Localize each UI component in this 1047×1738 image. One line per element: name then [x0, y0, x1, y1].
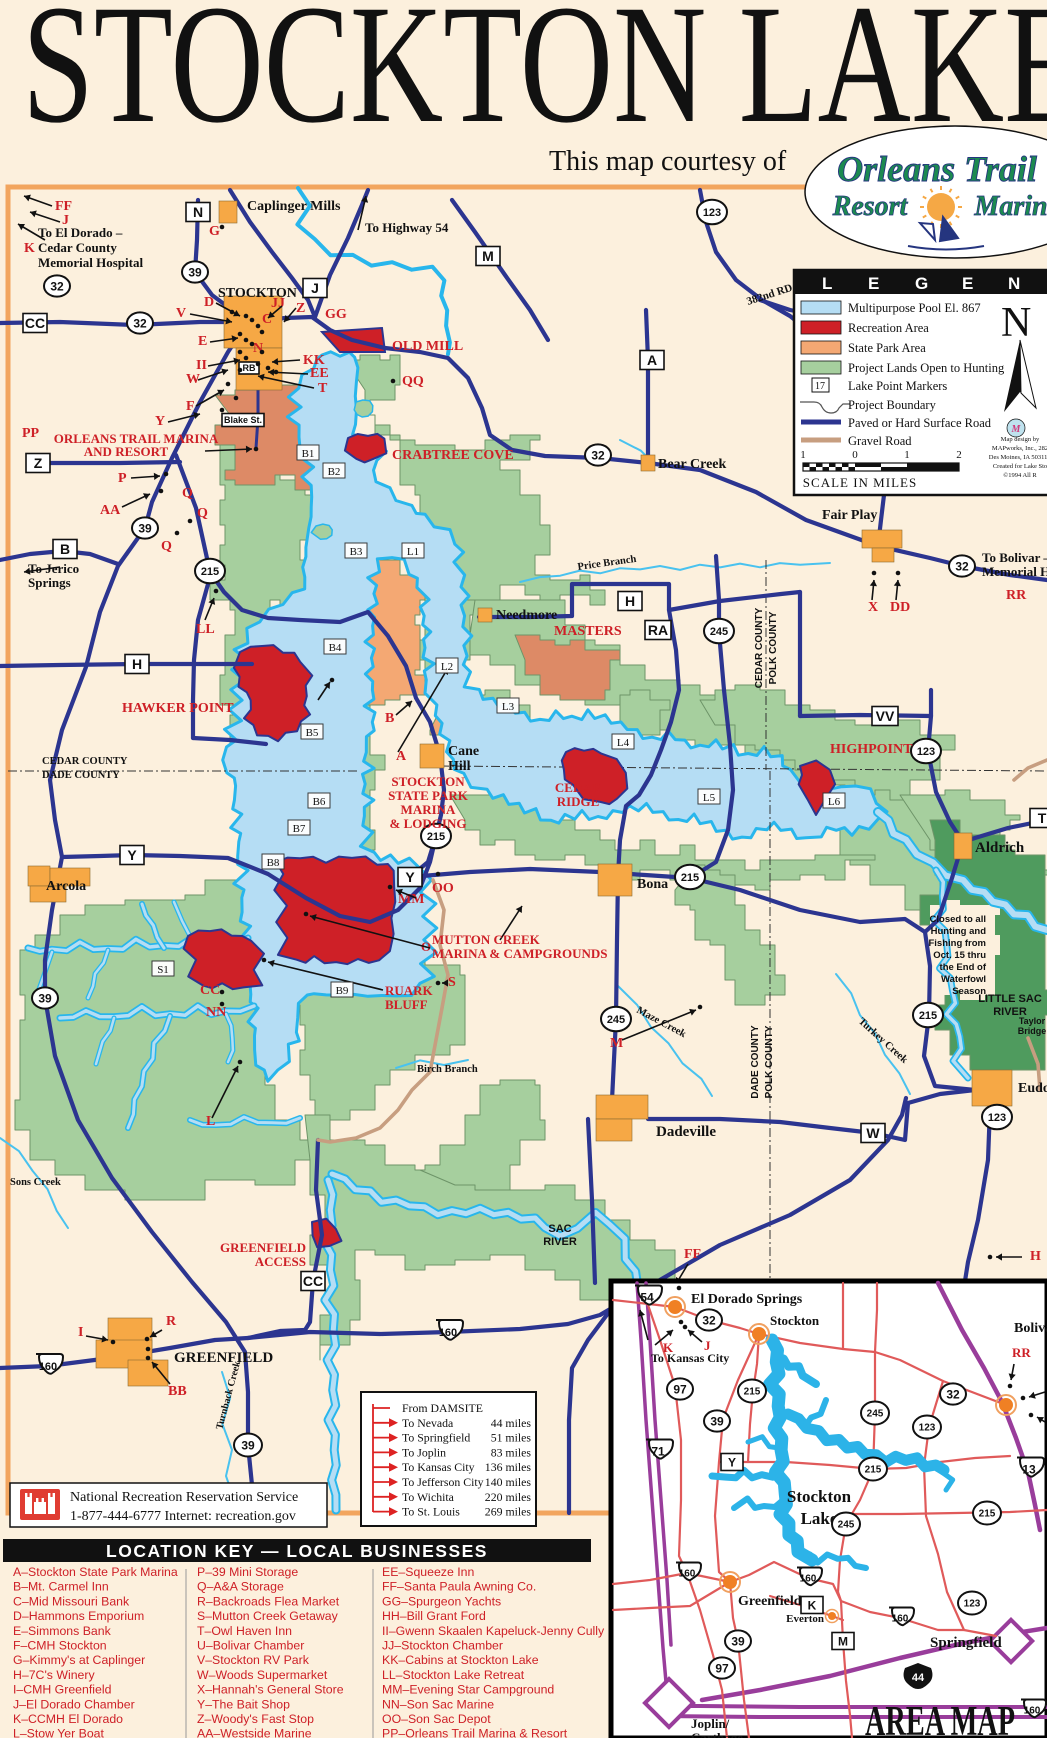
svg-text:C–Mid Missouri Bank: C–Mid Missouri Bank	[13, 1594, 130, 1608]
svg-text:STOCKTON: STOCKTON	[391, 774, 465, 789]
svg-text:160: 160	[800, 1574, 817, 1585]
svg-text:MARINA & CAMPGROUNDS: MARINA & CAMPGROUNDS	[432, 946, 608, 961]
svg-text:0: 0	[852, 449, 858, 461]
svg-text:136 miles: 136 miles	[485, 1460, 532, 1474]
svg-text:W: W	[866, 1125, 880, 1141]
svg-text:HH–Bill Grant Ford: HH–Bill Grant Ford	[382, 1609, 486, 1623]
svg-text:Taylor: Taylor	[1019, 1016, 1046, 1026]
svg-text:39: 39	[38, 991, 52, 1005]
svg-text:LOCATION KEY — LOCAL BUSINESSE: LOCATION KEY — LOCAL BUSINESSES	[106, 1541, 488, 1561]
svg-text:Springfield: Springfield	[930, 1635, 1002, 1651]
svg-text:Lake Point Markers: Lake Point Markers	[848, 379, 947, 393]
svg-text:P–39 Mini Storage: P–39 Mini Storage	[197, 1565, 298, 1579]
svg-text:39: 39	[731, 1634, 745, 1648]
svg-text:II–Gwenn Skaalen Kapeluck-Jenn: II–Gwenn Skaalen Kapeluck-Jenny Cully	[382, 1624, 605, 1638]
svg-text:DADE COUNTY: DADE COUNTY	[42, 770, 120, 781]
svg-text:GREENFIELD: GREENFIELD	[174, 1350, 273, 1366]
svg-text:CC: CC	[303, 1273, 323, 1289]
svg-text:39: 39	[241, 1438, 255, 1452]
svg-text:245: 245	[607, 1014, 625, 1026]
svg-text:Map design by: Map design by	[1001, 436, 1040, 443]
svg-text:39: 39	[138, 521, 152, 535]
svg-text:Q–A&A Storage: Q–A&A Storage	[197, 1580, 284, 1594]
svg-text:B7: B7	[293, 823, 306, 835]
svg-text:E: E	[962, 274, 973, 293]
svg-text:To Springfield: To Springfield	[402, 1431, 470, 1445]
svg-text:Boliva: Boliva	[1014, 1321, 1047, 1336]
svg-text:Created for Lake Sto: Created for Lake Sto	[993, 463, 1047, 470]
svg-text:To Highway 54: To Highway 54	[365, 220, 449, 235]
svg-text:CC: CC	[25, 315, 45, 331]
svg-text:S–Mutton Creek Getaway: S–Mutton Creek Getaway	[197, 1609, 339, 1623]
svg-text:CC: CC	[200, 983, 220, 998]
svg-text:OO–Son Sac Depot: OO–Son Sac Depot	[382, 1712, 491, 1726]
svg-text:AND RESORT: AND RESORT	[84, 444, 169, 459]
svg-text:To Bolivar –: To Bolivar –	[982, 550, 1047, 565]
svg-text:Dadeville: Dadeville	[656, 1124, 716, 1140]
svg-text:X: X	[868, 600, 878, 615]
svg-text:B–Mt. Carmel Inn: B–Mt. Carmel Inn	[13, 1580, 109, 1594]
svg-text:32: 32	[591, 448, 605, 462]
svg-text:V: V	[176, 306, 186, 321]
svg-text:K–CCMH El Dorado: K–CCMH El Dorado	[13, 1712, 123, 1726]
svg-text:P: P	[118, 471, 127, 486]
svg-text:POLK COUNTY: POLK COUNTY	[764, 1025, 775, 1098]
svg-text:Birch Branch: Birch Branch	[417, 1064, 478, 1075]
svg-text:E: E	[198, 334, 207, 349]
svg-text:To Kansas City: To Kansas City	[651, 1351, 729, 1365]
svg-text:Cedar County: Cedar County	[38, 240, 117, 255]
svg-text:U–Bolivar Chamber: U–Bolivar Chamber	[197, 1639, 304, 1653]
svg-text:RB: RB	[243, 363, 256, 373]
svg-text:Project Boundary: Project Boundary	[848, 398, 937, 412]
svg-text:Needmore: Needmore	[496, 608, 557, 623]
svg-text:Multipurpose Pool El. 867: Multipurpose Pool El. 867	[848, 301, 981, 315]
svg-text:1-877-444-6777 Internet: recre: 1-877-444-6777 Internet: recreation.gov	[70, 1509, 296, 1524]
svg-text:G: G	[915, 274, 928, 293]
svg-text:This map courtesy of: This map courtesy of	[549, 146, 787, 177]
svg-text:32: 32	[955, 559, 969, 573]
svg-text:L3: L3	[502, 701, 515, 713]
svg-text:BB: BB	[168, 1384, 187, 1399]
svg-text:L: L	[206, 1114, 215, 1129]
svg-text:Recreation Area: Recreation Area	[848, 321, 929, 335]
svg-text:F: F	[186, 399, 195, 414]
svg-text:Joplin/: Joplin/	[691, 1716, 730, 1731]
svg-text:X–Hannah's General Store: X–Hannah's General Store	[197, 1683, 344, 1697]
svg-text:BLUFF: BLUFF	[385, 997, 428, 1012]
svg-text:D–Hammons Emporium: D–Hammons Emporium	[13, 1609, 144, 1623]
svg-text:140 miles: 140 miles	[485, 1475, 532, 1489]
svg-text:B4: B4	[329, 642, 342, 654]
svg-text:QQ: QQ	[402, 374, 424, 389]
svg-text:FF–Santa Paula Awning Co.: FF–Santa Paula Awning Co.	[382, 1580, 536, 1594]
svg-text:B2: B2	[328, 466, 341, 478]
svg-text:El Dorado Springs: El Dorado Springs	[691, 1292, 803, 1307]
svg-text:H: H	[132, 656, 142, 672]
svg-text:1: 1	[800, 449, 806, 461]
svg-text:Fishing from: Fishing from	[928, 938, 986, 949]
svg-text:39: 39	[188, 265, 202, 279]
svg-text:Stockton: Stockton	[770, 1313, 820, 1328]
svg-text:97: 97	[715, 1661, 729, 1675]
svg-text:123: 123	[703, 207, 721, 219]
svg-text:VV: VV	[876, 708, 895, 724]
svg-text:LL–Stockton Lake Retreat: LL–Stockton Lake Retreat	[382, 1668, 525, 1682]
svg-text:I–CMH Greenfield: I–CMH Greenfield	[13, 1683, 112, 1697]
svg-text:Oct. 15 thru: Oct. 15 thru	[933, 950, 986, 961]
svg-text:RR: RR	[1012, 1345, 1031, 1360]
svg-text:HIGHPOINT: HIGHPOINT	[830, 742, 913, 757]
svg-text:G: G	[209, 224, 220, 239]
svg-text:2: 2	[956, 449, 962, 461]
svg-text:L2: L2	[441, 661, 453, 673]
svg-text:To El Dorado –: To El Dorado –	[38, 225, 123, 240]
svg-text:RUARK: RUARK	[385, 983, 434, 998]
svg-text:NN–Son Sac Marine: NN–Son Sac Marine	[382, 1697, 494, 1711]
svg-text:OO: OO	[432, 881, 454, 896]
svg-text:Eudo: Eudo	[1018, 1081, 1047, 1096]
svg-text:Gravel Road: Gravel Road	[848, 434, 912, 448]
svg-text:SAC: SAC	[548, 1223, 571, 1235]
svg-text:A: A	[396, 749, 407, 764]
svg-text:Y: Y	[728, 1455, 736, 1469]
svg-text:H–7C's Winery: H–7C's Winery	[13, 1668, 95, 1682]
svg-text:215: 215	[919, 1010, 937, 1022]
svg-text:215: 215	[865, 1465, 882, 1476]
svg-text:123: 123	[917, 746, 935, 758]
svg-text:Q: Q	[161, 539, 172, 554]
svg-text:To Nevada: To Nevada	[402, 1416, 454, 1430]
svg-text:& LODGING: & LODGING	[390, 816, 467, 831]
svg-text:Caplinger Mills: Caplinger Mills	[247, 199, 341, 214]
svg-text:T: T	[1038, 810, 1047, 826]
svg-text:215: 215	[427, 831, 445, 843]
svg-text:Arcola: Arcola	[46, 879, 86, 894]
svg-text:71: 71	[651, 1444, 665, 1458]
svg-text:13: 13	[1022, 1462, 1036, 1476]
svg-text:B: B	[385, 711, 394, 726]
svg-text:B6: B6	[313, 796, 326, 808]
svg-text:I: I	[78, 1325, 83, 1340]
svg-text:T: T	[318, 381, 328, 396]
svg-text:FF: FF	[55, 199, 72, 214]
svg-text:G–Kimmy's at Caplinger: G–Kimmy's at Caplinger	[13, 1653, 145, 1667]
svg-text:GREENFIELD: GREENFIELD	[220, 1240, 306, 1255]
svg-text:T–Owl Haven Inn: T–Owl Haven Inn	[197, 1624, 292, 1638]
svg-text:123: 123	[919, 1423, 936, 1434]
svg-text:CEDAR: CEDAR	[555, 780, 602, 795]
svg-text:LL: LL	[196, 622, 215, 637]
svg-text:Blake St.: Blake St.	[224, 415, 262, 425]
svg-text:Z: Z	[34, 455, 43, 471]
svg-text:Springs: Springs	[28, 575, 71, 590]
svg-text:MARINA: MARINA	[401, 802, 456, 817]
svg-text:NN: NN	[206, 1005, 226, 1020]
svg-text:AA–Westside Marine: AA–Westside Marine	[197, 1727, 312, 1738]
svg-text:Closed to all: Closed to all	[930, 914, 986, 925]
svg-text:OLD MILL: OLD MILL	[392, 339, 463, 354]
svg-text:MAPworks, Inc., 282: MAPworks, Inc., 282	[992, 445, 1047, 452]
svg-text:L5: L5	[703, 792, 716, 804]
svg-text:R–Backroads Flea Market: R–Backroads Flea Market	[197, 1594, 340, 1608]
svg-text:M: M	[838, 1634, 848, 1648]
svg-text:Bridge: Bridge	[1018, 1026, 1047, 1036]
svg-text:To Kansas City: To Kansas City	[402, 1460, 475, 1474]
svg-text:17: 17	[815, 381, 825, 392]
svg-text:215: 215	[201, 566, 219, 578]
svg-text:CEDAR COUNTY: CEDAR COUNTY	[42, 756, 128, 767]
svg-text:To Joplin: To Joplin	[402, 1445, 446, 1459]
svg-text:M: M	[610, 1036, 623, 1051]
svg-text:Fair Play: Fair Play	[822, 508, 877, 523]
svg-text:JJ–Stockton Chamber: JJ–Stockton Chamber	[382, 1639, 503, 1653]
svg-text:220 miles: 220 miles	[485, 1490, 532, 1504]
svg-text:EE: EE	[310, 366, 329, 381]
svg-text:DADE COUNTY: DADE COUNTY	[750, 1025, 761, 1099]
svg-text:KK–Cabins at Stockton Lake: KK–Cabins at Stockton Lake	[382, 1653, 539, 1667]
svg-text:S1: S1	[157, 964, 169, 976]
svg-text:B: B	[60, 541, 70, 557]
svg-text:L1: L1	[407, 546, 419, 558]
svg-text:54: 54	[640, 1290, 654, 1304]
svg-text:N: N	[1008, 274, 1020, 293]
svg-text:W–Woods Supermarket: W–Woods Supermarket	[197, 1668, 328, 1682]
svg-text:Sons Creek: Sons Creek	[10, 1177, 61, 1188]
svg-text:CEDAR COUNTY: CEDAR COUNTY	[754, 607, 765, 688]
svg-text:K: K	[24, 241, 35, 256]
svg-text:S: S	[448, 975, 456, 990]
svg-text:160: 160	[892, 1614, 909, 1625]
svg-text:PP–Orleans Trail Marina & Reso: PP–Orleans Trail Marina & Resort	[382, 1727, 568, 1738]
svg-text:215: 215	[744, 1387, 761, 1398]
svg-text:Memorial H: Memorial H	[982, 564, 1047, 579]
svg-text:Waterfowl: Waterfowl	[941, 974, 986, 985]
svg-text:123: 123	[964, 1599, 981, 1610]
svg-text:39: 39	[710, 1414, 724, 1428]
svg-text:STATE PARK: STATE PARK	[388, 788, 469, 803]
svg-text:B3: B3	[350, 546, 363, 558]
svg-text:H: H	[1030, 1249, 1041, 1264]
svg-text:©1994 All R: ©1994 All R	[1003, 472, 1037, 479]
svg-text:123: 123	[988, 1112, 1006, 1124]
svg-text:245: 245	[838, 1520, 855, 1531]
svg-text:POLK COUNTY: POLK COUNTY	[768, 611, 779, 684]
svg-text:L: L	[822, 274, 832, 293]
svg-text:L4: L4	[617, 737, 630, 749]
svg-text:160: 160	[39, 1361, 57, 1373]
svg-text:N: N	[193, 204, 203, 220]
svg-text:To Jefferson City: To Jefferson City	[402, 1475, 484, 1489]
svg-text:Aldrich: Aldrich	[975, 840, 1025, 856]
svg-text:245: 245	[710, 626, 728, 638]
svg-text:E: E	[868, 274, 879, 293]
svg-text:J–El Dorado Chamber: J–El Dorado Chamber	[13, 1697, 135, 1711]
svg-text:32: 32	[50, 279, 64, 293]
svg-text:A–Stockton State Park Marina: A–Stockton State Park Marina	[13, 1565, 178, 1579]
svg-text:Z: Z	[296, 301, 305, 316]
svg-text:K: K	[808, 1598, 817, 1612]
svg-text:Hill: Hill	[448, 759, 471, 774]
svg-text:215: 215	[681, 872, 699, 884]
svg-text:From DAMSITE: From DAMSITE	[402, 1401, 483, 1415]
svg-text:269 miles: 269 miles	[485, 1505, 532, 1519]
svg-text:the End of: the End of	[940, 962, 987, 973]
svg-text:44: 44	[912, 1672, 925, 1684]
svg-text:National Recreation Reservatio: National Recreation Reservation Service	[70, 1490, 298, 1505]
svg-text:GG: GG	[325, 307, 347, 322]
svg-text:E–Simmons Bank: E–Simmons Bank	[13, 1624, 112, 1638]
svg-text:V–Stockton RV Park: V–Stockton RV Park	[197, 1653, 310, 1667]
svg-text:Bear Creek: Bear Creek	[658, 457, 727, 472]
svg-text:A: A	[647, 352, 657, 368]
svg-text:Cane: Cane	[448, 744, 479, 759]
svg-text:Paved or Hard Surface Road: Paved or Hard Surface Road	[848, 416, 992, 430]
svg-text:M: M	[482, 248, 494, 264]
svg-text:HAWKER POINT: HAWKER POINT	[122, 701, 234, 716]
svg-text:Stockton: Stockton	[787, 1487, 852, 1506]
svg-text:H: H	[625, 593, 635, 609]
svg-text:245: 245	[867, 1409, 884, 1420]
svg-text:Memorial Hospital: Memorial Hospital	[38, 255, 143, 270]
svg-text:32: 32	[946, 1387, 960, 1401]
svg-text:160: 160	[1024, 1706, 1041, 1717]
svg-text:32: 32	[133, 316, 147, 330]
svg-text:1: 1	[904, 449, 910, 461]
svg-text:MM–Evening Star Campground: MM–Evening Star Campground	[382, 1683, 554, 1697]
svg-text:Y: Y	[405, 869, 415, 885]
svg-text:Q: Q	[182, 486, 193, 501]
svg-text:GG–Spurgeon Yachts: GG–Spurgeon Yachts	[382, 1594, 501, 1608]
svg-text:PP: PP	[22, 426, 40, 441]
svg-text:Project Lands Open to Hunting: Project Lands Open to Hunting	[848, 361, 1005, 375]
svg-text:MUTTON CREEK: MUTTON CREEK	[432, 932, 541, 947]
svg-text:ACCESS: ACCESS	[255, 1254, 306, 1269]
svg-text:215: 215	[979, 1509, 996, 1520]
svg-text:160: 160	[679, 1569, 696, 1580]
svg-text:Y: Y	[155, 414, 165, 429]
svg-text:Hunting and: Hunting and	[931, 926, 987, 937]
svg-text:Y: Y	[127, 847, 137, 863]
svg-text:R: R	[166, 1314, 177, 1329]
svg-text:D: D	[204, 295, 214, 310]
svg-text:L–Stow Yer Boat: L–Stow Yer Boat	[13, 1727, 105, 1738]
svg-text:Q: Q	[197, 506, 208, 521]
svg-text:MM: MM	[398, 892, 424, 907]
svg-text:RR: RR	[1006, 588, 1027, 603]
svg-text:RIVER: RIVER	[543, 1236, 577, 1248]
svg-text:J: J	[311, 280, 319, 296]
svg-text:M: M	[1011, 424, 1022, 435]
svg-text:Des Moines, IA 50311 -: Des Moines, IA 50311 -	[989, 454, 1047, 461]
svg-text:Greenfield: Greenfield	[738, 1594, 802, 1609]
svg-text:State Park Area: State Park Area	[848, 341, 926, 355]
svg-text:DD: DD	[890, 600, 910, 615]
svg-text:F–CMH Stockton: F–CMH Stockton	[13, 1639, 107, 1653]
svg-text:44 miles: 44 miles	[491, 1416, 532, 1430]
svg-text:Everton: Everton	[786, 1613, 824, 1625]
svg-text:Z–Woody's Fast Stop: Z–Woody's Fast Stop	[197, 1712, 314, 1726]
svg-text:B9: B9	[336, 985, 349, 997]
svg-text:CRABTREE COVE: CRABTREE COVE	[392, 448, 514, 463]
svg-text:B1: B1	[302, 448, 315, 460]
svg-text:AREA MAP: AREA MAP	[865, 1699, 1015, 1738]
svg-text:51 miles: 51 miles	[491, 1431, 532, 1445]
svg-text:RIDGE: RIDGE	[557, 794, 600, 809]
svg-text:N: N	[1001, 300, 1031, 346]
svg-text:160: 160	[439, 1327, 457, 1339]
svg-text:32: 32	[702, 1313, 716, 1327]
svg-text:STOCKTON: STOCKTON	[218, 286, 297, 301]
svg-text:Bona: Bona	[637, 877, 668, 892]
svg-text:97: 97	[673, 1382, 687, 1396]
svg-text:83 miles: 83 miles	[491, 1445, 532, 1459]
svg-text:Orleans Trail: Orleans Trail	[837, 149, 1037, 189]
svg-text:B5: B5	[306, 727, 319, 739]
svg-text:L6: L6	[828, 796, 841, 808]
svg-text:Y–The Bait Shop: Y–The Bait Shop	[197, 1697, 290, 1711]
svg-text:Marina: Marina	[973, 191, 1047, 222]
svg-text:Carthage: Carthage	[691, 1730, 743, 1738]
svg-text:SCALE IN MILES: SCALE IN MILES	[803, 475, 917, 490]
svg-text:RA: RA	[648, 622, 668, 638]
svg-text:LITTLE SAC: LITTLE SAC	[978, 993, 1042, 1005]
svg-text:AA: AA	[100, 503, 121, 518]
svg-text:To St. Louis: To St. Louis	[402, 1505, 460, 1519]
svg-text:FF: FF	[684, 1247, 701, 1262]
svg-text:EE–Squeeze Inn: EE–Squeeze Inn	[382, 1565, 474, 1579]
svg-text:Resort: Resort	[832, 191, 909, 222]
svg-text:To Wichita: To Wichita	[402, 1490, 455, 1504]
svg-text:II: II	[196, 358, 207, 373]
svg-text:MASTERS: MASTERS	[554, 624, 622, 639]
svg-text:B8: B8	[267, 857, 280, 869]
